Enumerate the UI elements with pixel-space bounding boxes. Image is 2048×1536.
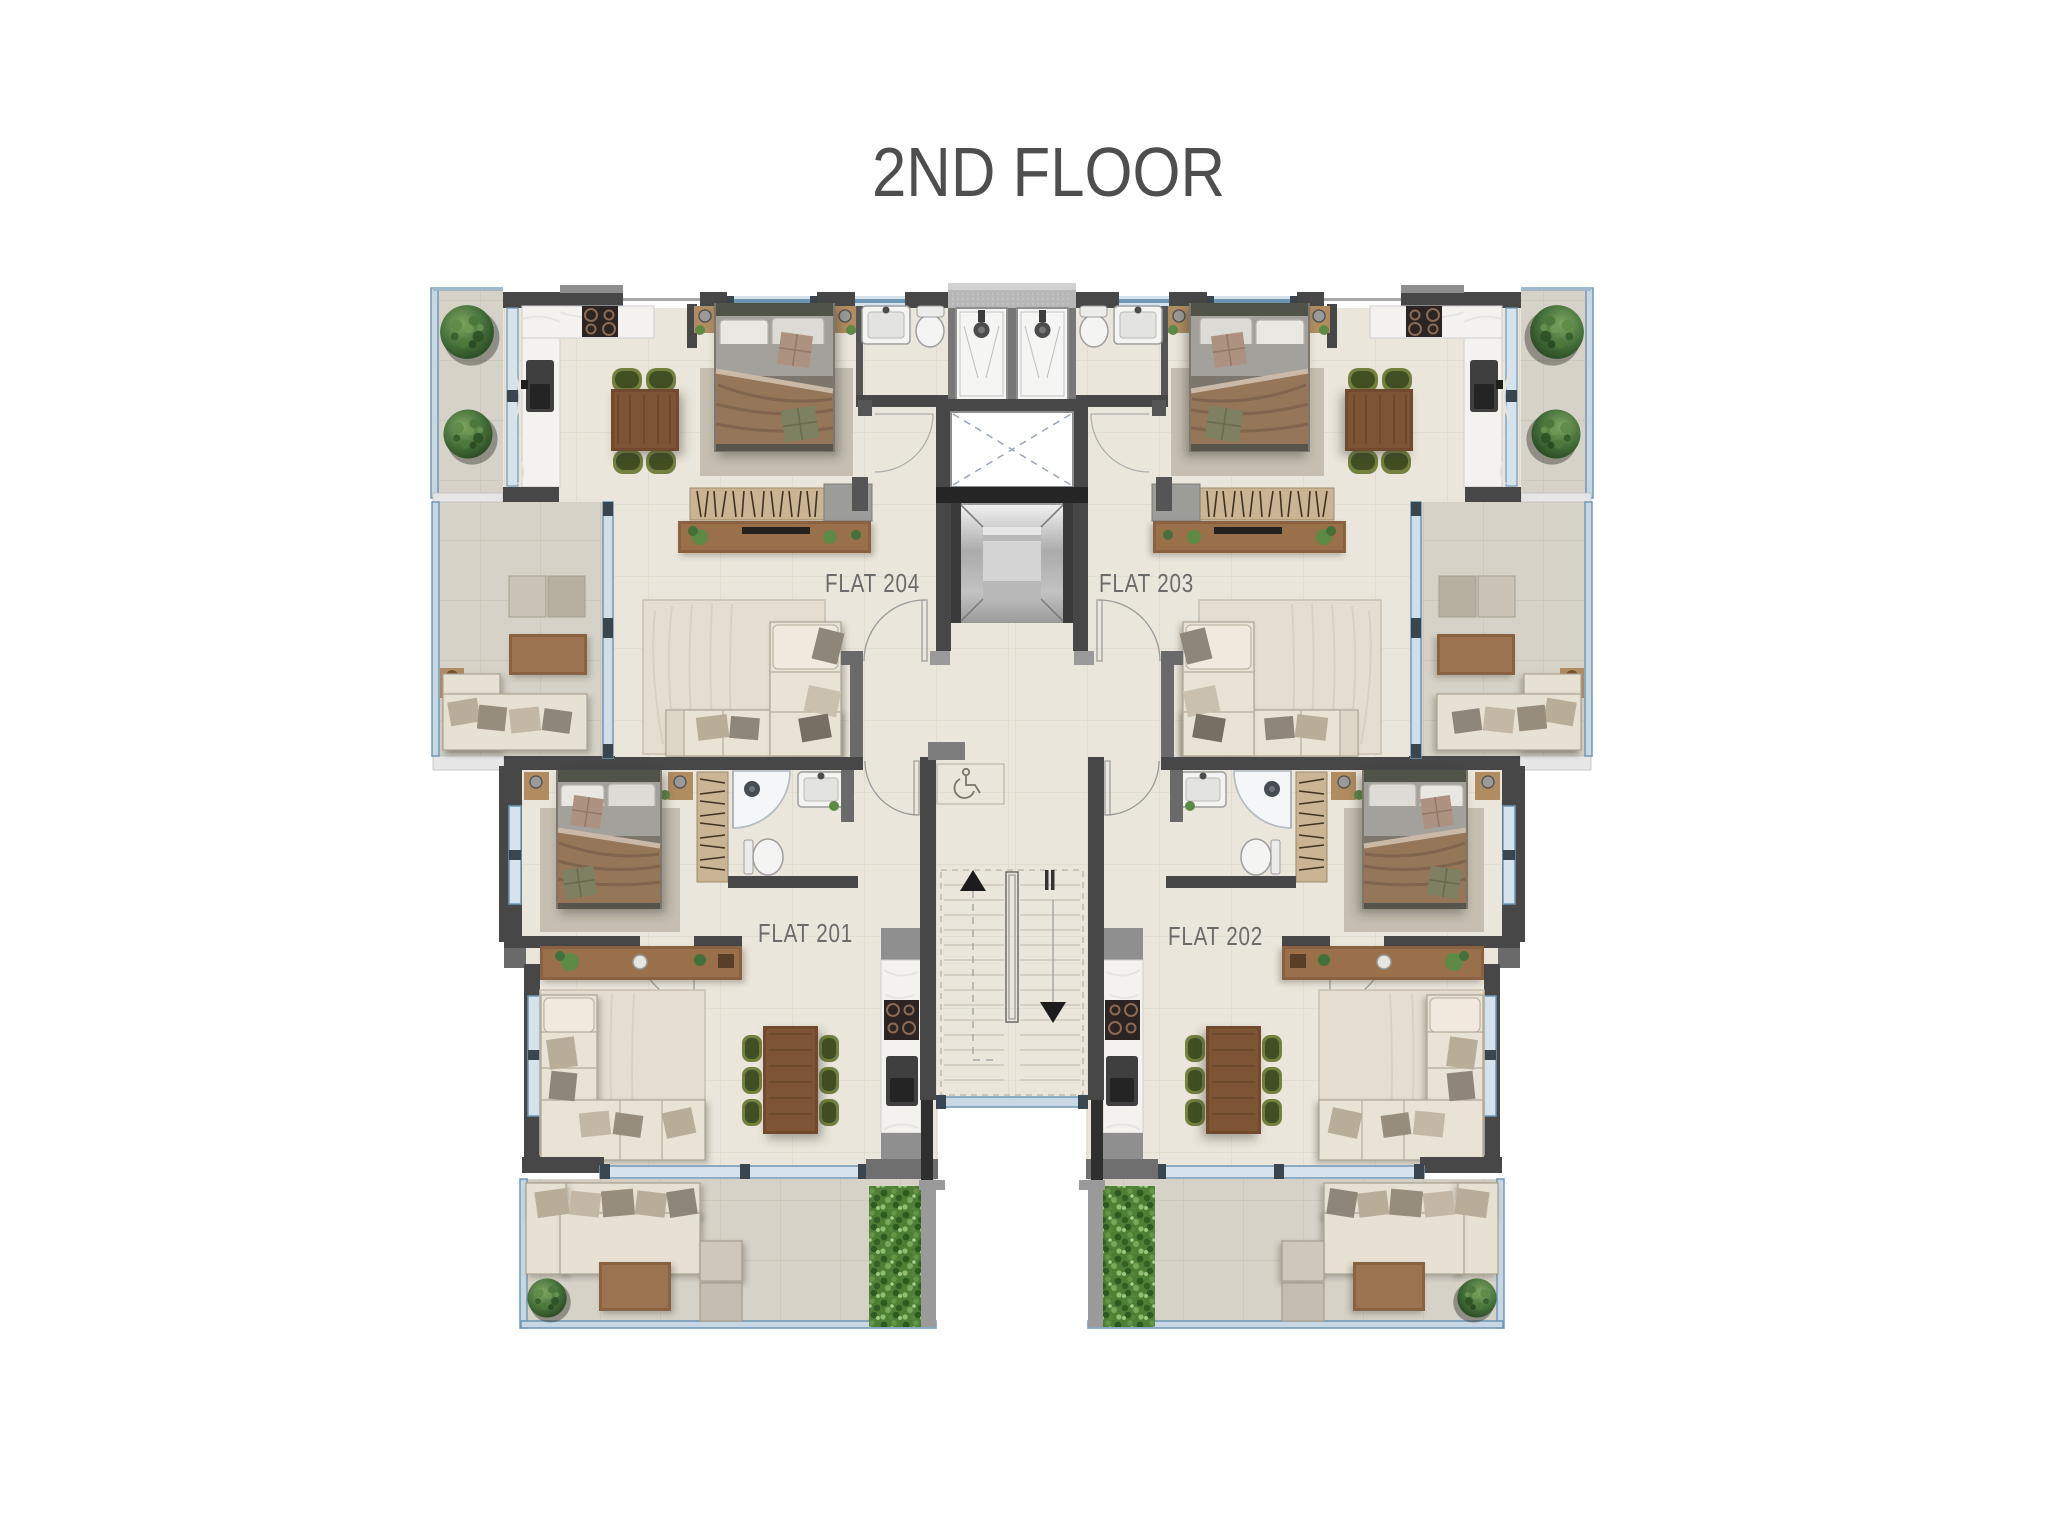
svg-text:FLAT 203: FLAT 203 (1099, 568, 1194, 598)
svg-text:FLAT 201: FLAT 201 (758, 918, 853, 948)
svg-text:FLAT 204: FLAT 204 (825, 568, 920, 598)
svg-text:2ND FLOOR: 2ND FLOOR (872, 133, 1225, 211)
svg-text:FLAT 202: FLAT 202 (1168, 921, 1263, 951)
